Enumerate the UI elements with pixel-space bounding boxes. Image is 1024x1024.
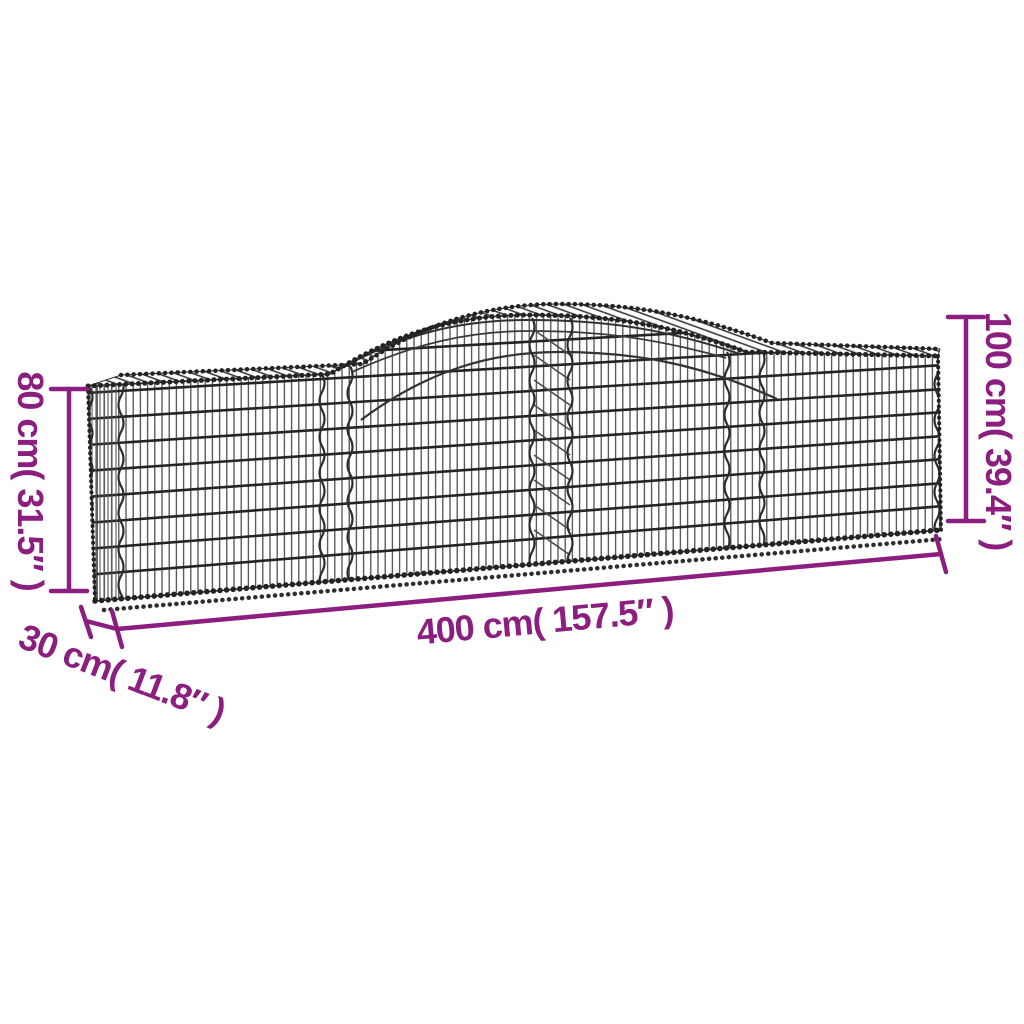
dimension-label-height-right: 100 cm( 39.4″ ) (980, 312, 1016, 550)
gabion-front-face (88, 315, 941, 601)
dimension-label-height-left: 80 cm( 31.5″ ) (12, 371, 48, 590)
dimension-line-height-left (51, 389, 87, 591)
gabion-dimension-diagram: 80 cm( 31.5″ ) 100 cm( 39.4″ ) 400 cm( 1… (0, 0, 1024, 1024)
gabion-illustration (0, 0, 1024, 1024)
